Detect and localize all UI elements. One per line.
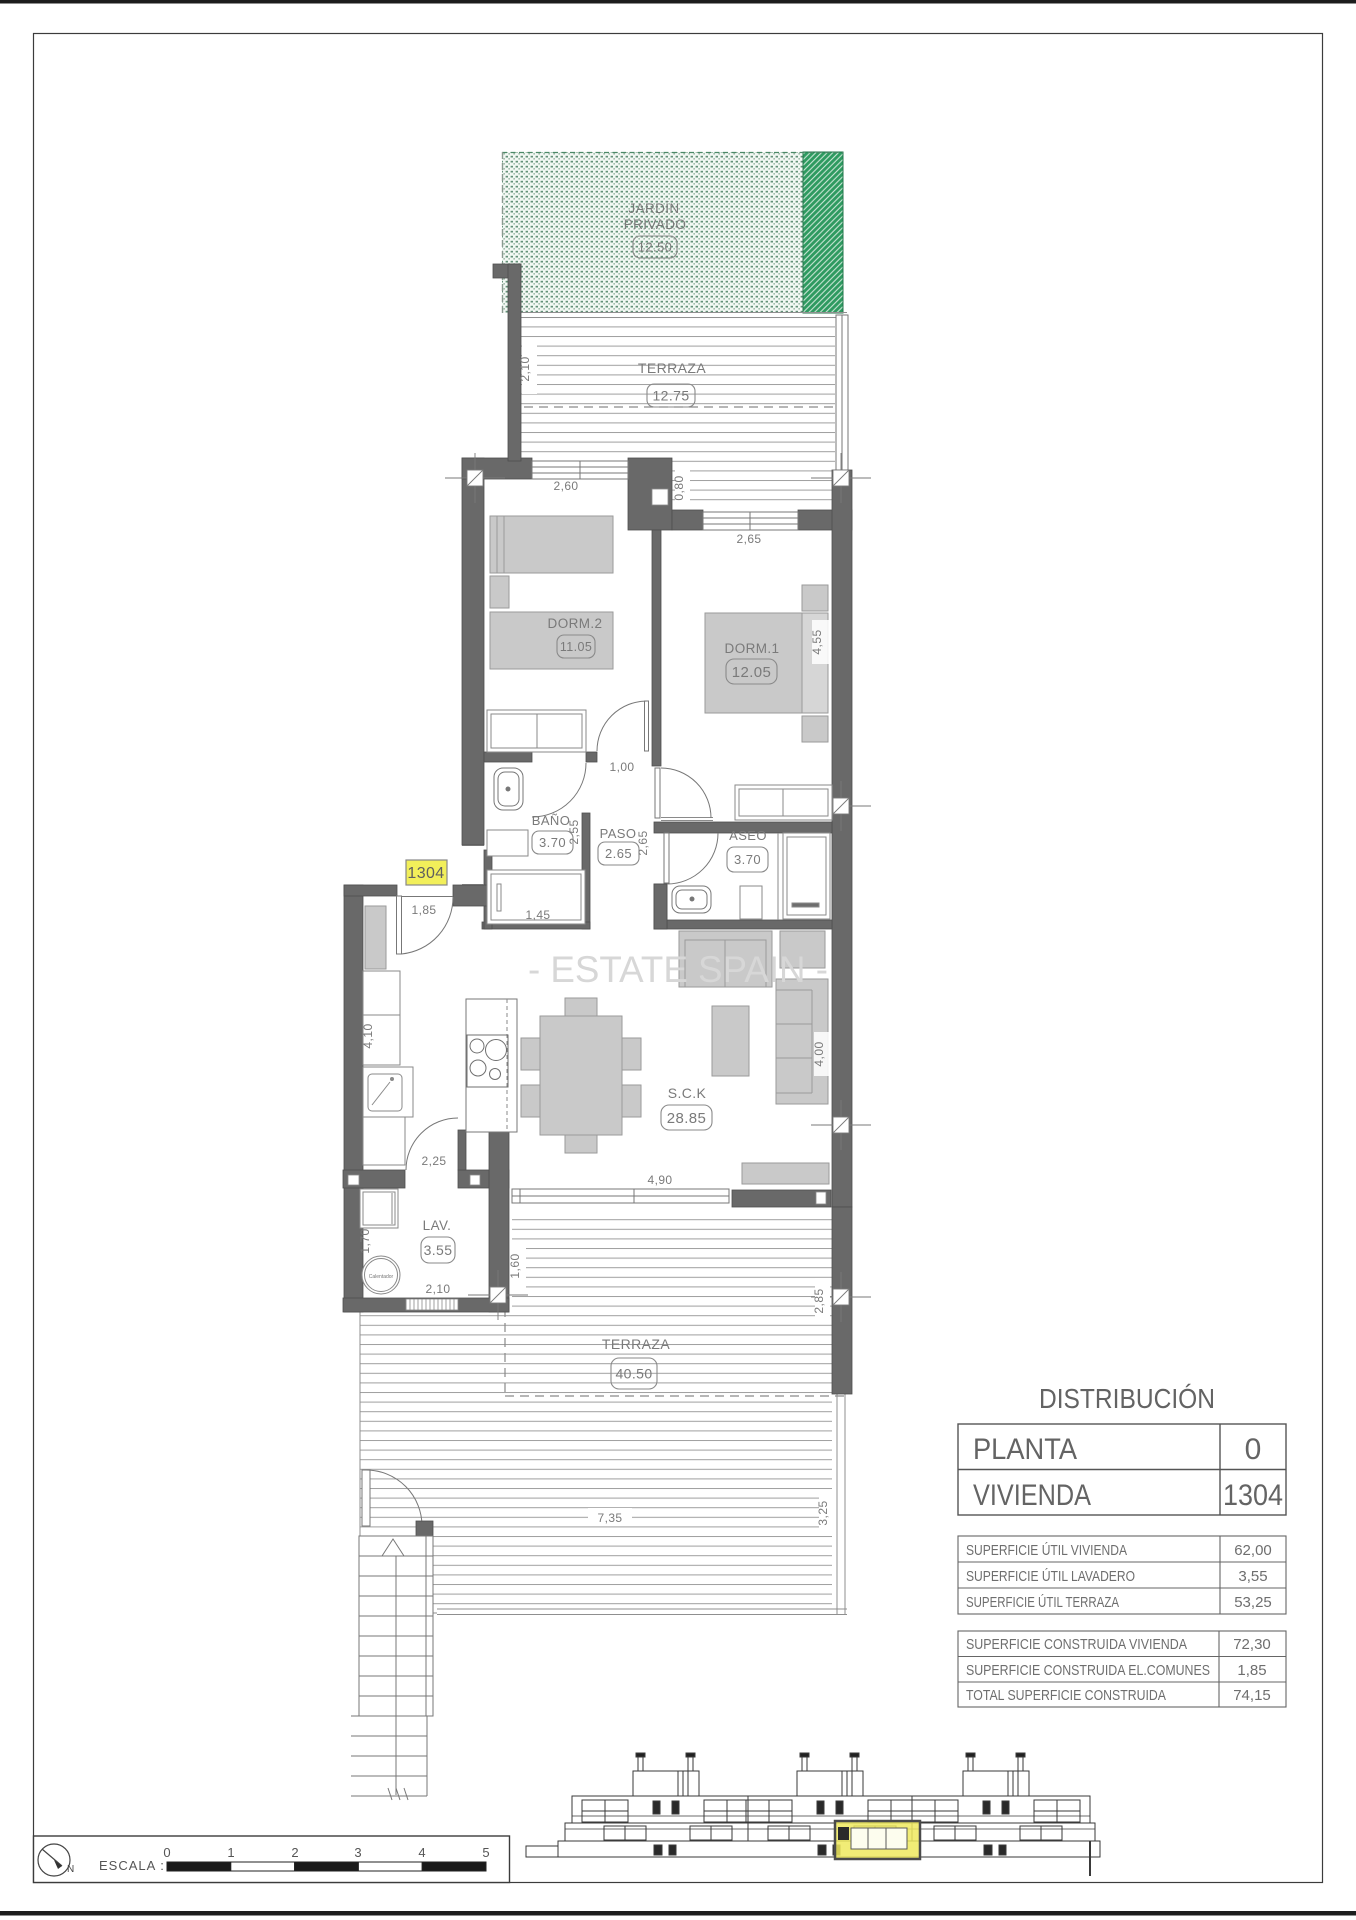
svg-text:12.50: 12.50: [638, 240, 673, 255]
svg-text:11.05: 11.05: [560, 640, 592, 654]
svg-text:LAV.: LAV.: [423, 1218, 452, 1233]
svg-text:3.55: 3.55: [424, 1242, 453, 1258]
svg-text:SUPERFICIE CONSTRUIDA VIVIENDA: SUPERFICIE CONSTRUIDA VIVIENDA: [966, 1636, 1187, 1653]
svg-text:N: N: [67, 1864, 74, 1875]
svg-text:3,55: 3,55: [1238, 1568, 1267, 1585]
svg-text:DORM.1: DORM.1: [725, 641, 780, 656]
svg-text:5: 5: [482, 1845, 489, 1860]
svg-text:1,60: 1,60: [508, 1253, 522, 1278]
svg-text:2,65: 2,65: [636, 830, 650, 855]
svg-text:ASEO: ASEO: [729, 828, 767, 843]
svg-text:4: 4: [418, 1845, 425, 1860]
svg-text:3.70: 3.70: [539, 835, 566, 850]
svg-text:BAÑO: BAÑO: [532, 813, 570, 828]
svg-text:SUPERFICIE ÚTIL LAVADERO: SUPERFICIE ÚTIL LAVADERO: [966, 1568, 1135, 1585]
svg-text:2.65: 2.65: [605, 846, 632, 861]
svg-text:1,85: 1,85: [412, 903, 437, 917]
svg-text:28.85: 28.85: [667, 1110, 707, 1127]
svg-text:4,10: 4,10: [361, 1023, 375, 1048]
svg-text:DISTRIBUCIÓN: DISTRIBUCIÓN: [1039, 1383, 1215, 1414]
svg-text:SUPERFICIE ÚTIL VIVIENDA: SUPERFICIE ÚTIL VIVIENDA: [966, 1542, 1127, 1559]
svg-text:2,10: 2,10: [426, 1282, 451, 1296]
svg-text:1,85: 1,85: [1237, 1662, 1266, 1679]
svg-text:7,35: 7,35: [598, 1511, 623, 1525]
svg-text:40.50: 40.50: [615, 1366, 652, 1382]
svg-text:0: 0: [1245, 1433, 1262, 1466]
svg-text:- ESTATE SPAIN -: - ESTATE SPAIN -: [528, 949, 828, 990]
svg-text:PLANTA: PLANTA: [973, 1433, 1077, 1466]
svg-text:SUPERFICIE CONSTRUIDA EL.COMUN: SUPERFICIE CONSTRUIDA EL.COMUNES: [966, 1662, 1210, 1679]
svg-text:53,25: 53,25: [1234, 1594, 1272, 1611]
svg-text:DORM.2: DORM.2: [548, 616, 603, 631]
svg-text:12.75: 12.75: [652, 388, 689, 404]
svg-text:Calentador: Calentador: [369, 1274, 394, 1280]
svg-text:1,45: 1,45: [526, 908, 551, 922]
svg-text:2,10: 2,10: [518, 356, 532, 381]
svg-text:2,55: 2,55: [567, 819, 581, 844]
svg-text:12.05: 12.05: [732, 664, 772, 681]
svg-text:PASO: PASO: [600, 826, 637, 841]
svg-text:2,25: 2,25: [422, 1154, 447, 1168]
svg-text:SUPERFICIE ÚTIL TERRAZA: SUPERFICIE ÚTIL TERRAZA: [966, 1594, 1119, 1611]
svg-text:ESCALA :: ESCALA :: [99, 1858, 165, 1873]
svg-text:3: 3: [354, 1845, 361, 1860]
svg-text:3.70: 3.70: [734, 852, 761, 867]
svg-text:2,65: 2,65: [737, 532, 762, 546]
svg-text:3,25: 3,25: [816, 1500, 830, 1525]
svg-text:S.C.K: S.C.K: [668, 1085, 707, 1101]
svg-text:1,00: 1,00: [610, 760, 635, 774]
svg-text:1304: 1304: [407, 865, 444, 882]
svg-text:0,80: 0,80: [672, 475, 686, 500]
svg-text:VIVIENDA: VIVIENDA: [973, 1479, 1091, 1512]
svg-text:72,30: 72,30: [1233, 1636, 1271, 1653]
svg-text:1304: 1304: [1223, 1479, 1283, 1512]
svg-text:2,60: 2,60: [554, 479, 579, 493]
svg-text:0: 0: [163, 1845, 170, 1860]
svg-text:TERRAZA: TERRAZA: [638, 360, 706, 376]
svg-text:4,55: 4,55: [810, 629, 824, 654]
svg-text:2: 2: [291, 1845, 298, 1860]
svg-text:TOTAL SUPERFICIE CONSTRUIDA: TOTAL SUPERFICIE CONSTRUIDA: [966, 1687, 1166, 1704]
svg-text:2,85: 2,85: [812, 1288, 826, 1313]
svg-text:62,00: 62,00: [1234, 1542, 1272, 1559]
svg-text:1: 1: [227, 1845, 234, 1860]
svg-text:TERRAZA: TERRAZA: [602, 1336, 670, 1352]
svg-text:4,90: 4,90: [648, 1173, 673, 1187]
svg-text:1,70: 1,70: [358, 1228, 372, 1253]
svg-text:4,00: 4,00: [812, 1041, 826, 1066]
svg-text:JARDÍN: JARDÍN: [628, 201, 679, 216]
svg-text:PRIVADO: PRIVADO: [624, 217, 687, 232]
svg-text:74,15: 74,15: [1233, 1687, 1271, 1704]
